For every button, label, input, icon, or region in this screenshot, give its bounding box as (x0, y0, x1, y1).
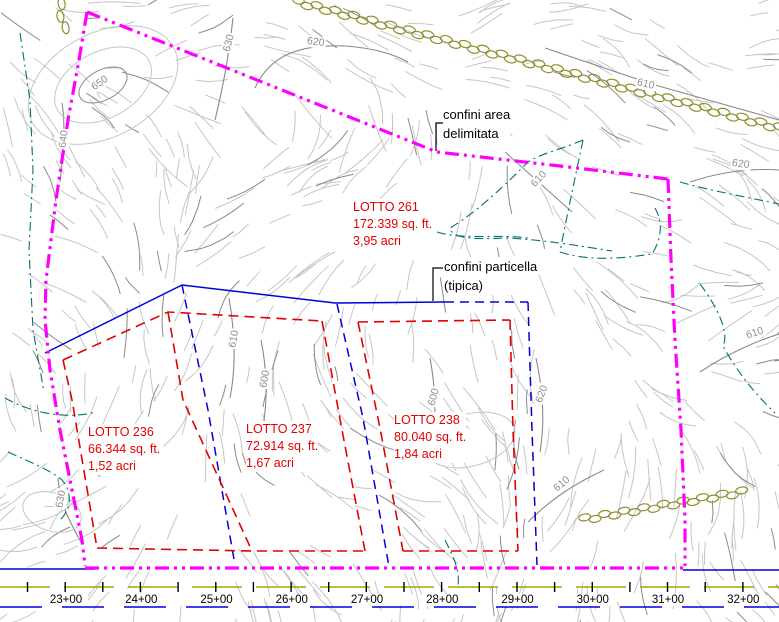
station-label: 28+00 (420, 594, 464, 606)
station-label: 24+00 (119, 594, 163, 606)
annotation-line: delimitata (443, 124, 510, 143)
station-label: 29+00 (496, 594, 540, 606)
lot-name: LOTTO 238 (394, 412, 466, 429)
station-label: 30+00 (571, 594, 615, 606)
lot-area: 66.344 sq. ft. (88, 441, 160, 458)
lot-name: LOTTO 236 (88, 424, 160, 441)
station-label: 25+00 (195, 594, 239, 606)
site-plan-canvas[interactable]: confini area delimitata confini particel… (0, 0, 779, 622)
annotation-line: confini particella (444, 257, 537, 276)
station-label: 31+00 (646, 594, 690, 606)
lot-area: 172.339 sq. ft. (353, 216, 432, 233)
station-label: 23+00 (44, 594, 88, 606)
lot-name: LOTTO 237 (246, 421, 318, 438)
lot-acres: 1,67 acri (246, 455, 318, 472)
lot-area: 72.914 sq. ft. (246, 438, 318, 455)
lot-name: LOTTO 261 (353, 199, 432, 216)
lot-acres: 1,52 acri (88, 458, 160, 475)
lot-acres: 1,84 acri (394, 446, 466, 463)
annotation-parcel-boundary: confini particella (tipica) (444, 257, 537, 295)
map-linework (0, 0, 779, 622)
lot-acres: 3,95 acri (353, 233, 432, 250)
station-label: 32+00 (721, 594, 765, 606)
annotation-area-boundary: confini area delimitata (443, 105, 510, 143)
station-label: 27+00 (345, 594, 389, 606)
annotation-line: confini area (443, 105, 510, 124)
lot-area: 80.040 sq. ft. (394, 429, 466, 446)
lot-label-236: LOTTO 236 66.344 sq. ft. 1,52 acri (88, 424, 160, 475)
lot-label-261: LOTTO 261 172.339 sq. ft. 3,95 acri (353, 199, 432, 250)
lot-label-237: LOTTO 237 72.914 sq. ft. 1,67 acri (246, 421, 318, 472)
station-label: 26+00 (270, 594, 314, 606)
annotation-line: (tipica) (444, 276, 537, 295)
lot-label-238: LOTTO 238 80.040 sq. ft. 1,84 acri (394, 412, 466, 463)
contour-elevation-label: 620 (730, 157, 751, 172)
contour-elevation-label: 640 (57, 129, 71, 150)
contour-elevation-label: 620 (305, 35, 326, 50)
